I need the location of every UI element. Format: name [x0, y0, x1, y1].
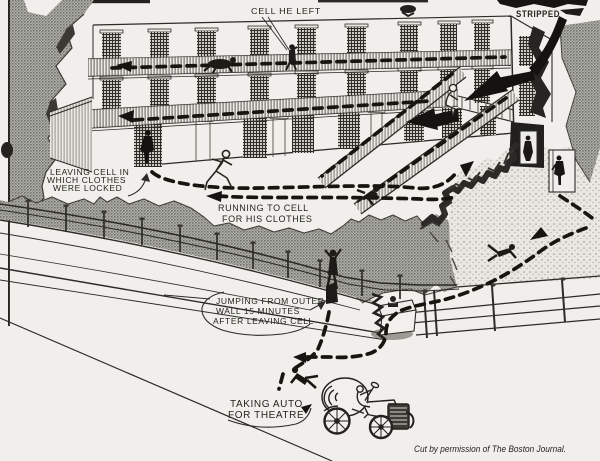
svg-text:FOR THEATRE: FOR THEATRE [228, 410, 304, 421]
svg-text:AFTER LEAVING CELL: AFTER LEAVING CELL [213, 316, 314, 326]
svg-text:RUNNING TO CELL: RUNNING TO CELL [218, 203, 309, 213]
svg-text:CELL HE LEFT: CELL HE LEFT [251, 6, 321, 16]
svg-text:FOR HIS CLOTHES: FOR HIS CLOTHES [222, 214, 313, 224]
svg-text:STRIPPED: STRIPPED [516, 9, 560, 19]
svg-text:JUMPING FROM OUTER: JUMPING FROM OUTER [216, 296, 325, 306]
svg-text:Cut by permission of The Bosto: Cut by permission of The Boston Journal. [414, 444, 566, 455]
svg-text:WALL 15 MINUTES: WALL 15 MINUTES [216, 306, 300, 316]
svg-text:WERE LOCKED: WERE LOCKED [53, 183, 122, 193]
svg-text:TAKING AUTO: TAKING AUTO [230, 399, 303, 410]
